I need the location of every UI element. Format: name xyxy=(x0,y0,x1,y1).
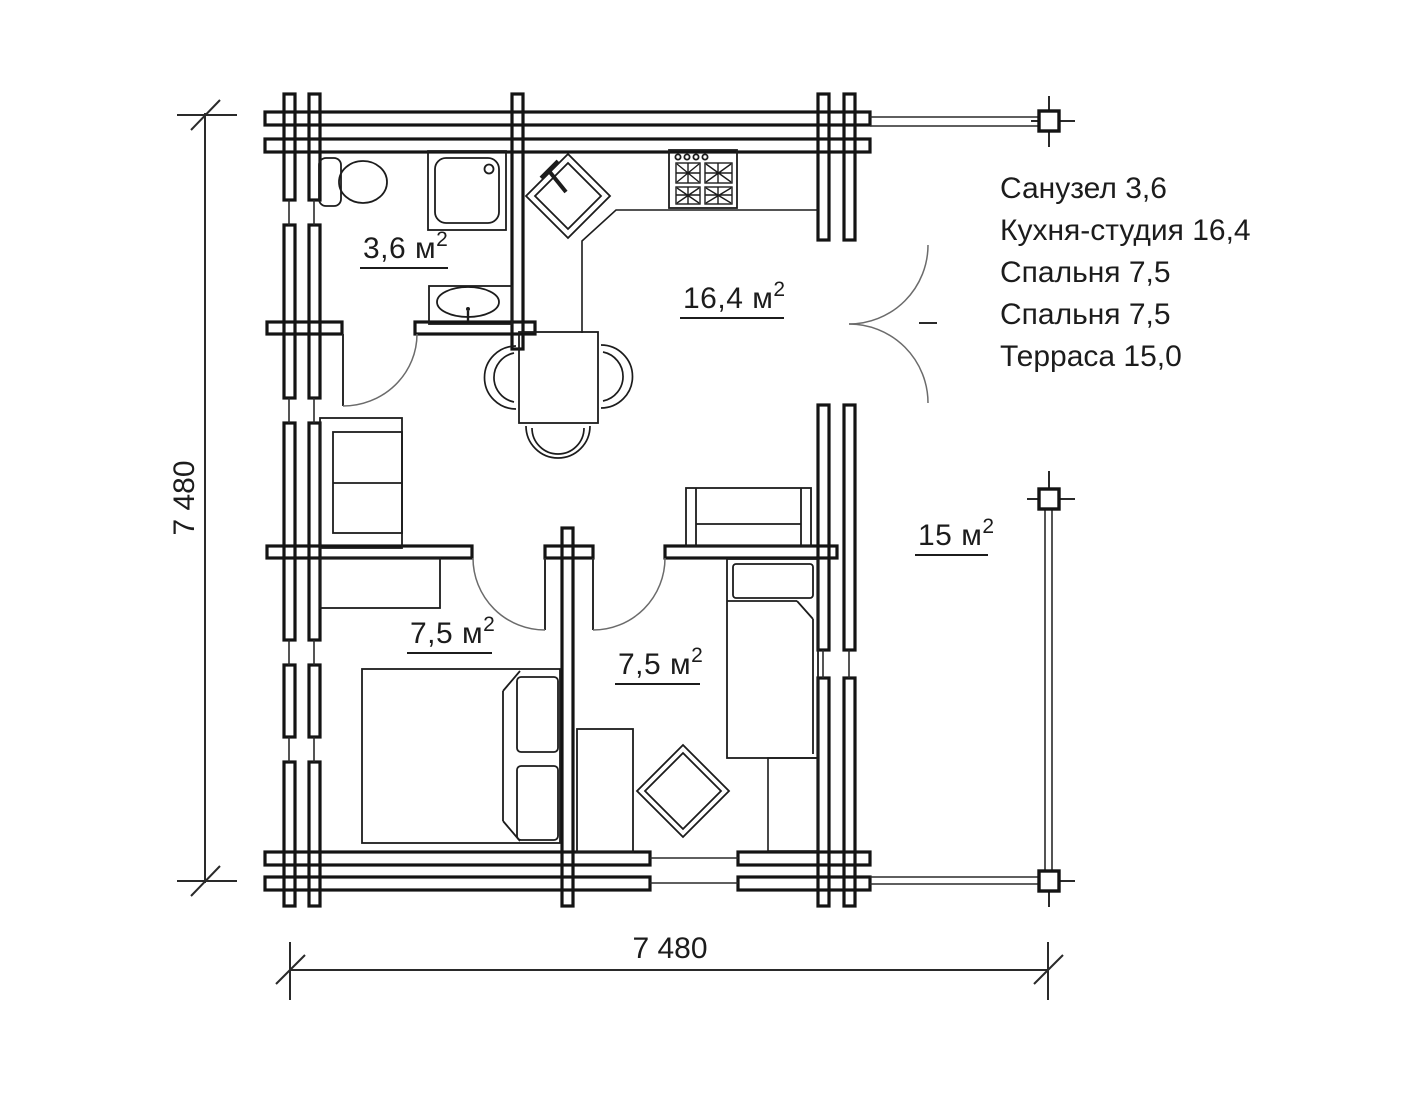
interior-walls xyxy=(267,94,837,906)
legend-line-bedroom2: Спальня 7,5 xyxy=(1000,298,1171,331)
wall-bathroom-right xyxy=(512,94,523,349)
legend: Санузел 3,6 Кухня-студия 16,4 Спальня 7,… xyxy=(1000,172,1251,373)
bedroom1-furniture xyxy=(320,558,560,843)
kitchen-wardrobe xyxy=(320,418,402,548)
room-label-kitchen: 16,4 м2 xyxy=(683,278,786,315)
bedside-cabinet xyxy=(768,758,818,851)
wall-bathroom-bottom-left xyxy=(267,322,342,334)
chair-right xyxy=(601,345,633,408)
chair-bottom xyxy=(526,426,590,458)
kitchen-fixtures xyxy=(320,150,818,548)
corner-sink xyxy=(526,154,610,238)
door-arc-bathroom xyxy=(343,334,417,406)
legend-line-bedroom1: Спальня 7,5 xyxy=(1000,256,1171,289)
labels: 3,6 м2 16,4 м2 7,5 м2 7,5 м2 15 м2 Сануз… xyxy=(168,172,1251,965)
dining-table xyxy=(519,332,598,423)
terrace-post-bottom xyxy=(1039,871,1075,907)
door-arc-bedroom2 xyxy=(593,558,665,630)
wardrobe xyxy=(577,729,633,852)
shower xyxy=(428,151,506,230)
wall-top-outer xyxy=(265,112,870,125)
door-arc-terrace-bottom xyxy=(849,324,928,403)
wall-bedroom2-top xyxy=(665,546,837,558)
double-bed xyxy=(362,669,560,843)
dimension-label-vertical: 7 480 xyxy=(168,460,201,535)
legend-line-terrace: Терраса 15,0 xyxy=(1000,340,1182,373)
dimension-label-horizontal: 7 480 xyxy=(632,932,707,965)
terrace-post-middle xyxy=(1027,471,1075,509)
bedroom2-furniture xyxy=(577,559,818,852)
wall-top-inner xyxy=(265,139,870,152)
room-label-bathroom: 3,6 м2 xyxy=(363,228,448,265)
room-label-terrace: 15 м2 xyxy=(918,515,995,552)
room-label-bedroom1: 7,5 м2 xyxy=(410,613,495,650)
legend-line-kitchen: Кухня-студия 16,4 xyxy=(1000,214,1251,247)
sofa xyxy=(686,488,811,546)
burner xyxy=(676,163,732,204)
exterior-walls xyxy=(265,94,870,906)
wall-door-stub-center xyxy=(545,546,593,558)
wall-bottom xyxy=(265,852,870,890)
legend-line-bathroom: Санузел 3,6 xyxy=(1000,172,1167,205)
chair-left xyxy=(485,346,517,409)
stove xyxy=(669,150,737,208)
doors xyxy=(343,245,937,630)
room-label-bedroom2: 7,5 м2 xyxy=(618,644,703,681)
wall-right xyxy=(818,94,855,906)
dresser xyxy=(320,558,440,608)
terrace-post-top xyxy=(1031,96,1075,147)
washbasin xyxy=(429,286,512,324)
floor-plan-drawing: 3,6 м2 16,4 м2 7,5 м2 7,5 м2 15 м2 Сануз… xyxy=(0,0,1422,1100)
door-arc-terrace-top xyxy=(849,245,928,324)
wall-between-bedrooms xyxy=(562,528,573,906)
single-bed xyxy=(727,559,818,758)
toilet xyxy=(319,158,387,206)
floor-plan-page: 3,6 м2 16,4 м2 7,5 м2 7,5 м2 15 м2 Сануз… xyxy=(0,0,1422,1100)
armchair xyxy=(637,745,729,837)
